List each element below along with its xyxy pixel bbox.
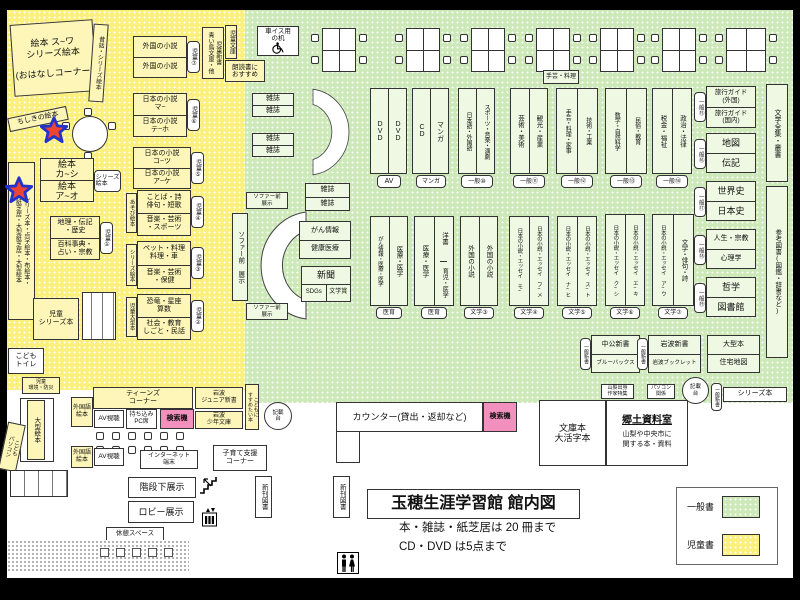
- chair: [460, 56, 468, 64]
- chair: [769, 34, 777, 42]
- legend: 一般書 児童書: [676, 487, 778, 565]
- sofa-front-display-label: ソファー前 展示: [246, 192, 288, 209]
- shelf-label: DVD: [371, 89, 388, 173]
- chair: [525, 34, 533, 42]
- life-religion-shelf: 人生・宗教 心理学: [706, 229, 756, 269]
- craft-tech-shelf: 手芸・料理・家事 技術・工業: [556, 88, 598, 174]
- wheelchair-icon: [271, 42, 285, 54]
- shelf-label: 民俗・教育: [626, 89, 647, 173]
- shelf-label: 地図: [707, 134, 755, 153]
- pc-related-box: パソコン 関係: [647, 384, 675, 399]
- shelf-label: 健康医療: [300, 240, 350, 259]
- stool: [144, 432, 152, 440]
- magazine-shelf: 雑誌 雑誌: [252, 93, 294, 117]
- shelf-label: スポーツ・音楽・演劇: [476, 89, 494, 173]
- shelf-label: 恐竜・星座 算数: [138, 295, 190, 317]
- new-books-shelf-2: 新刊図書: [333, 476, 350, 518]
- shelf-label: 日本の小説 マ~: [134, 94, 186, 115]
- iwanami-shinsho-shelf: 岩波新書 岩波ブックレット: [648, 335, 701, 373]
- shelf-label: 住宅地図: [708, 354, 759, 373]
- shelf-label: 雑誌: [253, 145, 293, 157]
- shelf-label: 外国の小説: [479, 217, 498, 305]
- reading-table: [600, 28, 634, 72]
- chair: [460, 34, 468, 42]
- shelf-label: マンガ: [430, 89, 448, 173]
- stool: [128, 432, 136, 440]
- shelf-label: 日本の小説 ア~ケ: [134, 168, 190, 189]
- shelf-label: 岩波新書: [649, 336, 700, 354]
- medical-badge: 医育: [376, 307, 402, 319]
- shelf-label: 文学賞: [327, 285, 351, 302]
- children-shinsho-shelf: 児童新書 青い鳥文庫・他: [202, 27, 224, 79]
- shelf-label: 日本語・外国語: [459, 89, 476, 173]
- children-large-books-strip: 児童大型本: [126, 297, 137, 337]
- bungaku3-badge: 文学③: [464, 307, 494, 319]
- chair: [637, 34, 645, 42]
- geography-shelf: 地理・伝記 ・歴史 百科事典・ 占い・宗教: [50, 216, 100, 260]
- ippan11-badge: 一般⑪: [513, 175, 545, 188]
- teens-corner: ティーンズ コーナー: [93, 387, 193, 409]
- shelf-label: 数学・自然科学: [606, 89, 626, 173]
- rest-seat: [132, 548, 141, 557]
- ippan16-badge: 一般⑯: [694, 139, 706, 169]
- reading-table: [471, 28, 505, 72]
- shelf-label: 音楽・芸術 ・スポーツ: [138, 213, 190, 236]
- byod-pc-seat: 持ち込み PC席: [126, 409, 157, 429]
- large-books-shelf: 大型本 住宅地図: [707, 335, 760, 373]
- local-history-room: 郷土資料室 山梨や中央市に 関する本・資料: [606, 400, 688, 466]
- philosophy-shelf: 哲学 図書館: [706, 277, 756, 317]
- reading-table: [406, 28, 440, 72]
- shelf-label: 絵本 カ~シ: [41, 159, 93, 180]
- shelf-label: 日本の小説・エッセイ ス~ト: [577, 217, 597, 305]
- chair: [395, 56, 403, 64]
- rest-seat: [148, 548, 157, 557]
- shelf-label: 観光・産業: [529, 89, 548, 173]
- ippan-shinsho-badge: 一般新書: [637, 338, 648, 370]
- shelf-label: 雑誌: [253, 105, 293, 117]
- shelf-label: 育児・医学: [440, 261, 447, 306]
- legend-general-label: 一般書: [687, 502, 714, 512]
- ippan-shinsho-badge: 一般新書: [711, 383, 722, 411]
- ippan19-badge: 一般⑲: [694, 283, 706, 313]
- chair: [395, 34, 403, 42]
- ippan18-badge: 一般⑱: [694, 235, 706, 265]
- stairs-icon: [198, 473, 218, 495]
- children-series-shelf: 児童 シリーズ本: [33, 298, 79, 340]
- shelf-label: 地理・伝記 ・歴史: [51, 217, 99, 238]
- pets-cooking-shelf: ペット・料理 料理・車 音楽・芸術 ・保健: [137, 241, 191, 289]
- shelf-label: ペット・料理 料理・車: [138, 242, 190, 265]
- shelf-label: 日本の小説 コ~ツ: [134, 148, 190, 168]
- newspaper-shelf: 新聞 SDGs 文学賞: [301, 266, 351, 302]
- handicraft-cooking-box: 手芸・料理: [543, 70, 579, 84]
- magazine-shelf: 雑誌 雑誌: [305, 183, 350, 211]
- shelf-label: 社会・教育 しごと・民話: [138, 317, 190, 340]
- legend-row-general: 一般書: [687, 496, 767, 518]
- shelf-label: SDGs: [302, 285, 327, 302]
- shelf-label: 政治・法律: [672, 89, 692, 173]
- shelf-label: 中公新書: [592, 336, 639, 354]
- search-terminal-teens: 検索機: [160, 409, 194, 429]
- yamanashi-authors-box: 山梨出身 作家特集: [601, 384, 634, 399]
- chair: [715, 34, 723, 42]
- star-marker: [5, 176, 33, 204]
- star-marker: [40, 116, 68, 144]
- shelf-label: ブルーバックス: [592, 354, 639, 373]
- shelf-label: 外国の小説: [461, 217, 479, 305]
- ippan13-badge: 一般⑬: [610, 175, 642, 188]
- new-books-shelf-1: 新刊図書: [255, 476, 272, 518]
- rest-space-area: [7, 540, 189, 572]
- ippan15-badge: 一般⑮: [694, 92, 706, 122]
- chair: [84, 108, 92, 116]
- dinosaur-science-shelf: 恐竜・星座 算数 社会・教育 しごと・民話: [137, 294, 191, 340]
- local-history-room-desc: 山梨や中央市に 関する本・資料: [623, 430, 672, 451]
- internet-terminal: インターネット 端末: [140, 450, 198, 469]
- map-biography-shelf: 地図 伝記: [706, 133, 756, 173]
- picture-books-shelf: 絵本 カ~シ 絵本 ア~オ: [40, 158, 94, 202]
- chair: [589, 56, 597, 64]
- foreign-novel-shelf-children: 外国の小説 外国の小説: [133, 36, 187, 78]
- jido5-badge: 児童⑤: [191, 152, 204, 184]
- shelf-row: SDGs 文学賞: [302, 284, 350, 302]
- shelf-label: がん情報・医療・医学: [371, 217, 389, 305]
- shelf-label: 外国の小説: [134, 57, 186, 78]
- av-viewing-2: AV視聴: [94, 448, 124, 466]
- chair: [651, 34, 659, 42]
- shelf-label: DVD: [388, 89, 406, 173]
- shelf-label: 人生・宗教: [707, 230, 755, 249]
- dvd-shelf: DVD DVD: [370, 88, 407, 174]
- loan-limit-note-2: CD・DVD は5点まで: [399, 540, 619, 556]
- jido1-badge: 児童①: [100, 222, 113, 254]
- legend-general-swatch: [722, 496, 760, 518]
- shelf-label: 哲学: [707, 278, 755, 297]
- shelf-label: 日本の小説 テ~ホ: [134, 115, 186, 137]
- shelf-label: 日本史: [707, 201, 755, 221]
- shelf-label: 技術・工業: [577, 89, 598, 173]
- jido7-badge: 児童⑦: [187, 41, 200, 73]
- japanese-novel-shelf-4: 日本の小説・エッセイ モ~ 日本の小説・エッセイ フ~メ: [509, 216, 549, 306]
- shelf-label: 外国の小説: [134, 37, 186, 57]
- chair: [525, 56, 533, 64]
- medical-badge: 医育: [421, 307, 447, 319]
- shelf-label: CD: [413, 89, 430, 173]
- jido2-badge: 児童②: [191, 300, 204, 332]
- stool: [160, 432, 168, 440]
- travel-guide-shelf: 旅行ガイド (外国) 旅行ガイド (国内): [706, 86, 756, 128]
- large-picture-books-label: 大型絵本: [27, 400, 45, 460]
- av-viewing-1: AV視聴: [94, 410, 124, 428]
- legend-children-label: 児童書: [687, 540, 714, 550]
- stool: [112, 432, 120, 440]
- art-tourism-shelf: 芸術・美術 観光・産業: [510, 88, 548, 174]
- shelf-label: 伝記: [707, 153, 755, 173]
- medical-shelf-1: がん情報・医療・医学 医療・医学: [370, 216, 408, 306]
- chair: [573, 34, 581, 42]
- children-environment-shelf: 児童 環境・防災: [22, 377, 60, 394]
- chair: [508, 34, 516, 42]
- shelf-label: 図書館: [707, 297, 755, 317]
- chair: [311, 34, 319, 42]
- medical-shelf-2: 医療・医学 洋書 育児・医学: [414, 216, 454, 306]
- chair: [311, 56, 319, 64]
- toilet-icon: [337, 552, 359, 574]
- jido6-badge: 児童⑥: [187, 99, 200, 131]
- cancer-health-shelf: がん情報 健康医療: [299, 221, 351, 259]
- sofa-crescent: [306, 86, 360, 178]
- series-ehon-strip: シリーズ絵本: [126, 244, 137, 286]
- shelf-label: 絵本 ア~オ: [41, 180, 93, 202]
- series-ehon-badge: シリーズ 絵本: [94, 170, 121, 192]
- bungaku6-badge: 文学⑥: [610, 307, 640, 319]
- chair: [359, 56, 367, 64]
- wheelchair-desk: 車イス用 の机: [257, 26, 299, 56]
- chair: [699, 56, 707, 64]
- chair: [637, 56, 645, 64]
- recommended-for-children-strip: こどもに すすめたい本: [245, 384, 259, 430]
- ippan17-badge: 一般⑰: [694, 187, 706, 217]
- shelf-label: 洋書: [440, 217, 447, 261]
- shelf-label: 日本の小説・エッセイ モ~: [510, 217, 529, 305]
- shelf-label: 岩波ブックレット: [649, 354, 700, 373]
- chair: [699, 34, 707, 42]
- shelf-label: ことば・詩 俳句・短歌: [138, 191, 190, 213]
- language-performing-shelf: 日本語・外国語 スポーツ・音楽・演劇: [458, 88, 495, 174]
- manga-badge: マンガ: [416, 175, 446, 188]
- chair: [715, 56, 723, 64]
- chair: [508, 56, 516, 64]
- shelf-label: 旅行ガイド (国内): [707, 107, 755, 128]
- rest-space-label: 休憩スペース: [106, 527, 164, 541]
- under-stairs-display: 階段下展示: [128, 477, 196, 498]
- shelf-label: 医療・医学: [389, 217, 408, 305]
- iwanami-shonen-bunko: 岩波 少年文庫: [195, 411, 243, 429]
- picture-book-corner: 絵本 ス~ワ シリーズ絵本 (おはなしコーナー): [10, 19, 98, 97]
- stool: [128, 446, 136, 454]
- chair: [769, 56, 777, 64]
- shelf-label: 日本の小説・エッセイ ナ~ヒ: [558, 217, 577, 305]
- chair: [651, 56, 659, 64]
- series-books-label: シリーズ本: [723, 387, 787, 402]
- shelf-label: 雑誌: [253, 134, 293, 145]
- foreign-lang-picture-books-2: 外国語 絵本: [71, 446, 93, 468]
- shelf-label: がん情報: [300, 222, 350, 240]
- shelf-label: 百科事典・ 占い・宗教: [51, 238, 99, 260]
- shelf-label: 旅行ガイド (外国): [707, 87, 755, 107]
- history-shelf: 世界史 日本史: [706, 181, 756, 221]
- reference-books-shelf: 参考図書(図鑑・辞書など): [766, 186, 788, 358]
- rest-seat: [116, 548, 125, 557]
- shelf-label: 音楽・芸術 ・保健: [138, 265, 190, 289]
- shelf-label: 雑誌: [306, 197, 349, 211]
- book-trough: [82, 292, 116, 340]
- jido4-badge: 児童④: [191, 196, 204, 228]
- stool: [176, 432, 184, 440]
- ippan14-badge: 一般⑭: [656, 175, 688, 188]
- bungaku4-badge: 文学④: [514, 307, 544, 319]
- av-badge: AV: [377, 175, 401, 188]
- counter-wing: [336, 431, 360, 463]
- foreign-lang-picture-books-1: 外国語 絵本: [71, 397, 93, 427]
- reading-table: [726, 28, 766, 72]
- shelf-label: 心理学: [707, 249, 755, 269]
- cd-manga-shelf: CD マンガ: [412, 88, 449, 174]
- tax-politics-shelf: 税金・福祉 政治・法律: [652, 88, 692, 174]
- magazine-shelf: 雑誌 雑誌: [252, 133, 294, 157]
- readaloud-recommend-box: 朗読書に おすすめ: [225, 60, 265, 82]
- literature-collection-shelf: 文学全集・叢書: [766, 84, 788, 182]
- bunkobon-large-print-shelf: 文庫本 大活字本: [539, 400, 606, 466]
- japanese-novel-shelf-7: 日本の小説・エッセイ ア~ウ 文学・俳句・詩: [652, 214, 694, 306]
- shelf-label: 日本の小説・エッセイ ア~ウ: [653, 215, 673, 305]
- jido3-badge: 児童③: [191, 247, 204, 279]
- chair: [573, 56, 581, 64]
- bench: [10, 470, 68, 497]
- shelf-label: 日本の小説・エッセイ フ~メ: [529, 217, 549, 305]
- shelf-label: 手芸・料理・家事: [557, 89, 577, 173]
- shelf-label: 世界史: [707, 182, 755, 201]
- shelf-label: 税金・福祉: [653, 89, 672, 173]
- japanese-novel-shelf-6: 日本の小説・エッセイ ク~シ 日本の小説・エッセイ エ~キ: [605, 214, 645, 306]
- chair: [589, 34, 597, 42]
- legend-children-swatch: [722, 534, 760, 556]
- rest-seat: [164, 548, 173, 557]
- iwanami-junior-shinsho: 岩波 ジュニア新書: [195, 387, 243, 409]
- japanese-novel-ko-shelf: 日本の小説 コ~ツ 日本の小説 ア~ケ: [133, 147, 191, 189]
- bungaku5-badge: 文学⑤: [562, 307, 592, 319]
- lobby-display: ロビー展示: [128, 501, 194, 523]
- wheelchair-desk-label: 車イス用 の机: [265, 28, 291, 43]
- shelf-label: 日本の小説・エッセイ エ~キ: [625, 215, 645, 305]
- reading-table: [322, 28, 356, 72]
- ippan10-badge: 一般⑩: [461, 175, 493, 188]
- bungaku7-badge: 文学⑦: [658, 307, 688, 319]
- children-bunko-strip: 児童文庫: [225, 25, 237, 59]
- elevator-icon: [202, 507, 217, 527]
- reading-table: [662, 28, 696, 72]
- parenting-support-corner: 子育て支援 コーナー: [213, 445, 267, 471]
- chair: [443, 56, 451, 64]
- shelf-label: 芸術・美術: [511, 89, 529, 173]
- legend-row-children: 児童書: [687, 534, 767, 556]
- stool: [96, 432, 104, 440]
- children-toilet: こども トイレ: [8, 348, 44, 374]
- chair: [359, 34, 367, 42]
- chair: [443, 34, 451, 42]
- counter: カウンター(貸出・返却など): [336, 402, 483, 432]
- local-history-room-title: 郷土資料室: [622, 415, 672, 427]
- sofa-front-display-label: ソファー前 展示: [246, 303, 288, 320]
- ippan-shinsho-badge: 一般新書: [580, 338, 591, 370]
- shelf-label: 新聞: [302, 267, 350, 284]
- shelf-label: 雑誌: [253, 94, 293, 105]
- foreign-novel-shelf: 外国の小説 外国の小説: [460, 216, 498, 306]
- ippan12-badge: 一般⑫: [561, 175, 593, 188]
- shelf-label: 文学・俳句・詩: [673, 215, 694, 305]
- play-books-strip: あそび絵本: [126, 193, 137, 233]
- map-title: 玉穂生涯学習館 館内図: [367, 489, 580, 519]
- writing-stand-left: 記載 台: [264, 402, 292, 430]
- chair: [108, 122, 116, 130]
- math-science-shelf: 数学・自然科学 民俗・教育: [605, 88, 647, 174]
- japanese-novel-ma-shelf: 日本の小説 マ~ 日本の小説 テ~ホ: [133, 93, 187, 137]
- round-table: [72, 116, 108, 152]
- shelf-label: 医療・医学: [415, 217, 434, 305]
- reading-table: [536, 28, 570, 72]
- shelf-label: 大型本: [708, 336, 759, 354]
- shelf-column: 洋書 育児・医学: [434, 217, 454, 305]
- shelf-label: 雑誌: [306, 184, 349, 197]
- shelf-label: 日本の小説・エッセイ ク~シ: [606, 215, 625, 305]
- words-poetry-shelf: ことば・詩 俳句・短歌 音楽・芸術 ・スポーツ: [137, 190, 191, 236]
- search-terminal-counter: 検索機: [483, 402, 517, 432]
- chuko-shinsho-shelf: 中公新書 ブルーバックス: [591, 335, 640, 373]
- rest-seat: [100, 548, 109, 557]
- sofa-front-display-shelf: ソファー前 展示: [232, 213, 248, 301]
- loan-limit-note-1: 本・雑誌・紙芝居は 20 冊まで: [399, 521, 619, 537]
- japanese-novel-shelf-5: 日本の小説・エッセイ ナ~ヒ 日本の小説・エッセイ ス~ト: [557, 216, 597, 306]
